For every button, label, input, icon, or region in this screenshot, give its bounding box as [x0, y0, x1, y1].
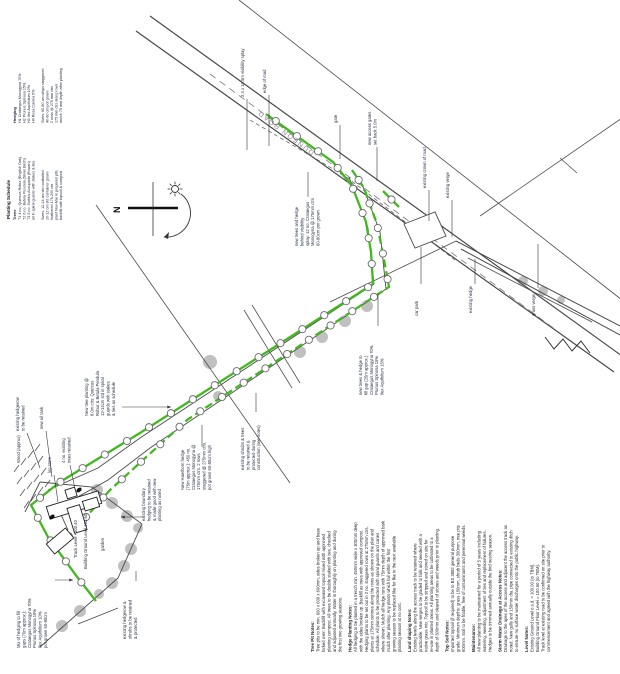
road-label: DUNEON ROAD [256, 109, 315, 156]
field-boundary-north [239, 0, 620, 300]
apex-left-arm [330, 241, 456, 302]
building-outline [46, 528, 74, 554]
woodland-hatch-stroke [27, 482, 32, 489]
tree-marker [365, 235, 372, 242]
car-park-outline [404, 212, 446, 248]
annotation-label: edge of road [262, 69, 267, 93]
annotation-label: existing crown of road [422, 147, 427, 188]
woodland-hatch-stroke [38, 456, 43, 463]
tree-marker [388, 196, 395, 203]
woodland-hatch-stroke [17, 477, 22, 484]
annotation-label: new oil tank [39, 406, 44, 429]
woodland-hatch-stroke [38, 487, 43, 494]
tree-marker [101, 451, 108, 458]
note-line: depth of 300mm and cleared of stones and… [435, 487, 441, 652]
drawing-page: NDUNEON ROAD2.4 x 10.5m visibility splay… [0, 0, 620, 674]
tree-marker [305, 336, 312, 343]
tree-marker [34, 514, 41, 521]
schedule-section: TreesT1 4 no. Quercus Robur (English Oak… [13, 130, 64, 220]
tree-marker [189, 396, 196, 403]
annotation-label: 4 no. existingtrees retained [61, 437, 71, 463]
sun-ray [170, 184, 172, 186]
tree-marker [78, 579, 85, 586]
crossing-a [244, 310, 292, 388]
annotation-label: new access gatesset back 5.0m [367, 112, 377, 145]
tree-marker [255, 354, 262, 361]
annotation-label: grass verge [531, 293, 536, 316]
tree-marker [36, 494, 43, 501]
note-paragraph: Level Notes:Existing Ground Level o.s.d.… [524, 487, 552, 652]
woodland-hatch-stroke [14, 465, 19, 472]
schedule-size-row: backfill with topsoil & compost [59, 130, 64, 220]
note-paragraph: Maintenance:All new planting to be maint… [471, 487, 493, 652]
leader-line [54, 475, 58, 502]
tree-marker [197, 408, 204, 415]
tree-marker [370, 293, 377, 300]
annotation-label: New Hawthorn hedge(75m approx.): 450 no.… [180, 442, 212, 490]
tree-marker [349, 185, 356, 192]
annotation-label: log store [47, 456, 52, 473]
note-line: the first two growing seasons. [338, 487, 344, 652]
tree-marker [218, 393, 225, 400]
tree-marker [364, 284, 371, 291]
north-label: N [112, 207, 122, 214]
sun-icon [172, 186, 179, 193]
note-paragraph: Land shaping Notes:Existing levels along… [407, 487, 440, 652]
tree-marker [349, 308, 356, 315]
tree-marker [240, 379, 247, 386]
leader-arrowhead [167, 405, 171, 408]
tree-marker [368, 260, 375, 267]
leader-line [27, 433, 40, 468]
tree-marker [327, 322, 334, 329]
tree-marker [355, 176, 362, 183]
woodland-hatch-stroke [20, 489, 25, 496]
existing-shrub-blob [56, 620, 68, 632]
annotation-label: existing hedgerowto be retained [15, 396, 25, 431]
existing-shrub-blob [118, 560, 130, 572]
note-line: commencement and agreed with the highway… [546, 487, 552, 652]
annotation-label: car park [414, 300, 419, 316]
schedule-title: Planting Schedule [6, 26, 11, 219]
sun-ray [170, 192, 172, 194]
tree-marker [62, 558, 69, 565]
tree-marker [321, 312, 328, 319]
tree-marker [366, 200, 373, 207]
tree-marker [118, 476, 125, 483]
road-north-edge [150, 16, 620, 356]
note-paragraph: Storm Water Drainage at Access Notes:Dra… [498, 487, 520, 652]
tree-marker [299, 326, 306, 333]
woodland-hatch-stroke [45, 480, 50, 487]
annotation-label: Building Ground Level 100.60 [83, 513, 88, 569]
specification-notes: Tree Pit Notes:Tree pits to be min. 600 … [310, 487, 620, 652]
planting-schedule: Planting Schedule TreesT1 4 no. Quercus … [6, 26, 106, 220]
annotation-label: New tree planting @8.0m ctrs: QuercusRob… [84, 370, 116, 416]
tree-marker [57, 478, 64, 485]
tree-marker [374, 224, 381, 231]
tree-marker [384, 275, 391, 282]
woodland-hatch-stroke [28, 451, 33, 458]
building-outline [65, 487, 77, 499]
arc-arrowhead [164, 232, 169, 239]
tree-marker [176, 423, 183, 430]
tree-marker [277, 340, 284, 347]
note-paragraph: Top Soil Notes:Imported topsoil (if requ… [445, 487, 467, 652]
sun-ray [178, 184, 180, 186]
tree-marker [145, 424, 152, 431]
annotation-label: Mix of hedging to fillgaps (70m approx.)… [16, 598, 48, 648]
annotation-label: Track Level +100.40 [73, 519, 78, 558]
tree-marker [334, 164, 341, 171]
note-paragraph: Tree Pit Notes:Tree pits to be min. 600 … [310, 487, 343, 652]
tree-marker [262, 365, 269, 372]
se-track-b [461, 249, 620, 336]
schedule-section-title: Hedging [13, 33, 18, 123]
woodland-hatch-stroke [35, 444, 40, 451]
schedule-tables: TreesT1 4 no. Quercus Robur (English Oak… [13, 26, 64, 220]
tree-marker [157, 441, 164, 448]
schedule-section-title: Trees [13, 130, 18, 220]
woodland-hatch-stroke [34, 475, 39, 482]
tree-marker [233, 368, 240, 375]
note-line: planting season at no cost. [397, 487, 403, 652]
tree-marker [123, 437, 130, 444]
annotation-label: existing shrubs & treesto be retained &p… [240, 425, 261, 470]
note-line: 600mm. Soil to be friable, free of conta… [461, 487, 467, 652]
woodland-hatch-stroke [21, 458, 26, 465]
annotation-label: existing verge [445, 171, 450, 198]
annotation-label: new trees and hedgebehind visibilityspla… [294, 198, 321, 246]
woodland-hatch-stroke [31, 463, 36, 470]
schedule-section: HedgingH1 Crataegus Monogyna 70%H2 Prunu… [13, 33, 64, 123]
sun-path-arc [164, 194, 191, 237]
annotation-label: Wood (approx) [16, 435, 21, 463]
annotation-label: new trees & hedge tofill gap (25m approx… [358, 345, 385, 395]
tree-marker [284, 350, 291, 357]
drive-edge-east [58, 184, 386, 530]
annotation-label: garden [100, 537, 105, 551]
tree-marker [359, 209, 366, 216]
schedule-size-row: mulch 75 mm depth after planting [59, 33, 64, 123]
woodland-hatch-stroke [41, 468, 46, 475]
annotation-label: 2.4 x 10.5m visibility splay [240, 48, 245, 97]
tree-marker [167, 410, 174, 417]
field-branch [480, 118, 620, 216]
road-south-edge [136, 31, 614, 372]
annotation-label: existing hedgerow &shrubs to be retained… [122, 599, 138, 639]
tree-marker [79, 465, 86, 472]
note-paragraph: Hedge Planting Notes:All hedging to be p… [348, 487, 403, 652]
annotation-label: existing boundaryhedging to be retained&… [141, 478, 162, 521]
note-line: Hedges to be trimmed annually outside th… [488, 487, 494, 652]
annotation-label: gate [333, 114, 338, 123]
field-tick [560, 158, 577, 173]
annotation-label: existing hedge [468, 285, 473, 313]
tree-marker [211, 382, 218, 389]
woodland-hatch-stroke [24, 470, 29, 477]
leader-arrowhead [69, 578, 73, 581]
note-line: to ensure no surface water discharges on… [514, 487, 520, 652]
tree-marker [379, 250, 386, 257]
sun-ray [178, 192, 180, 194]
tree-marker [343, 298, 350, 305]
tree-marker [137, 458, 144, 465]
